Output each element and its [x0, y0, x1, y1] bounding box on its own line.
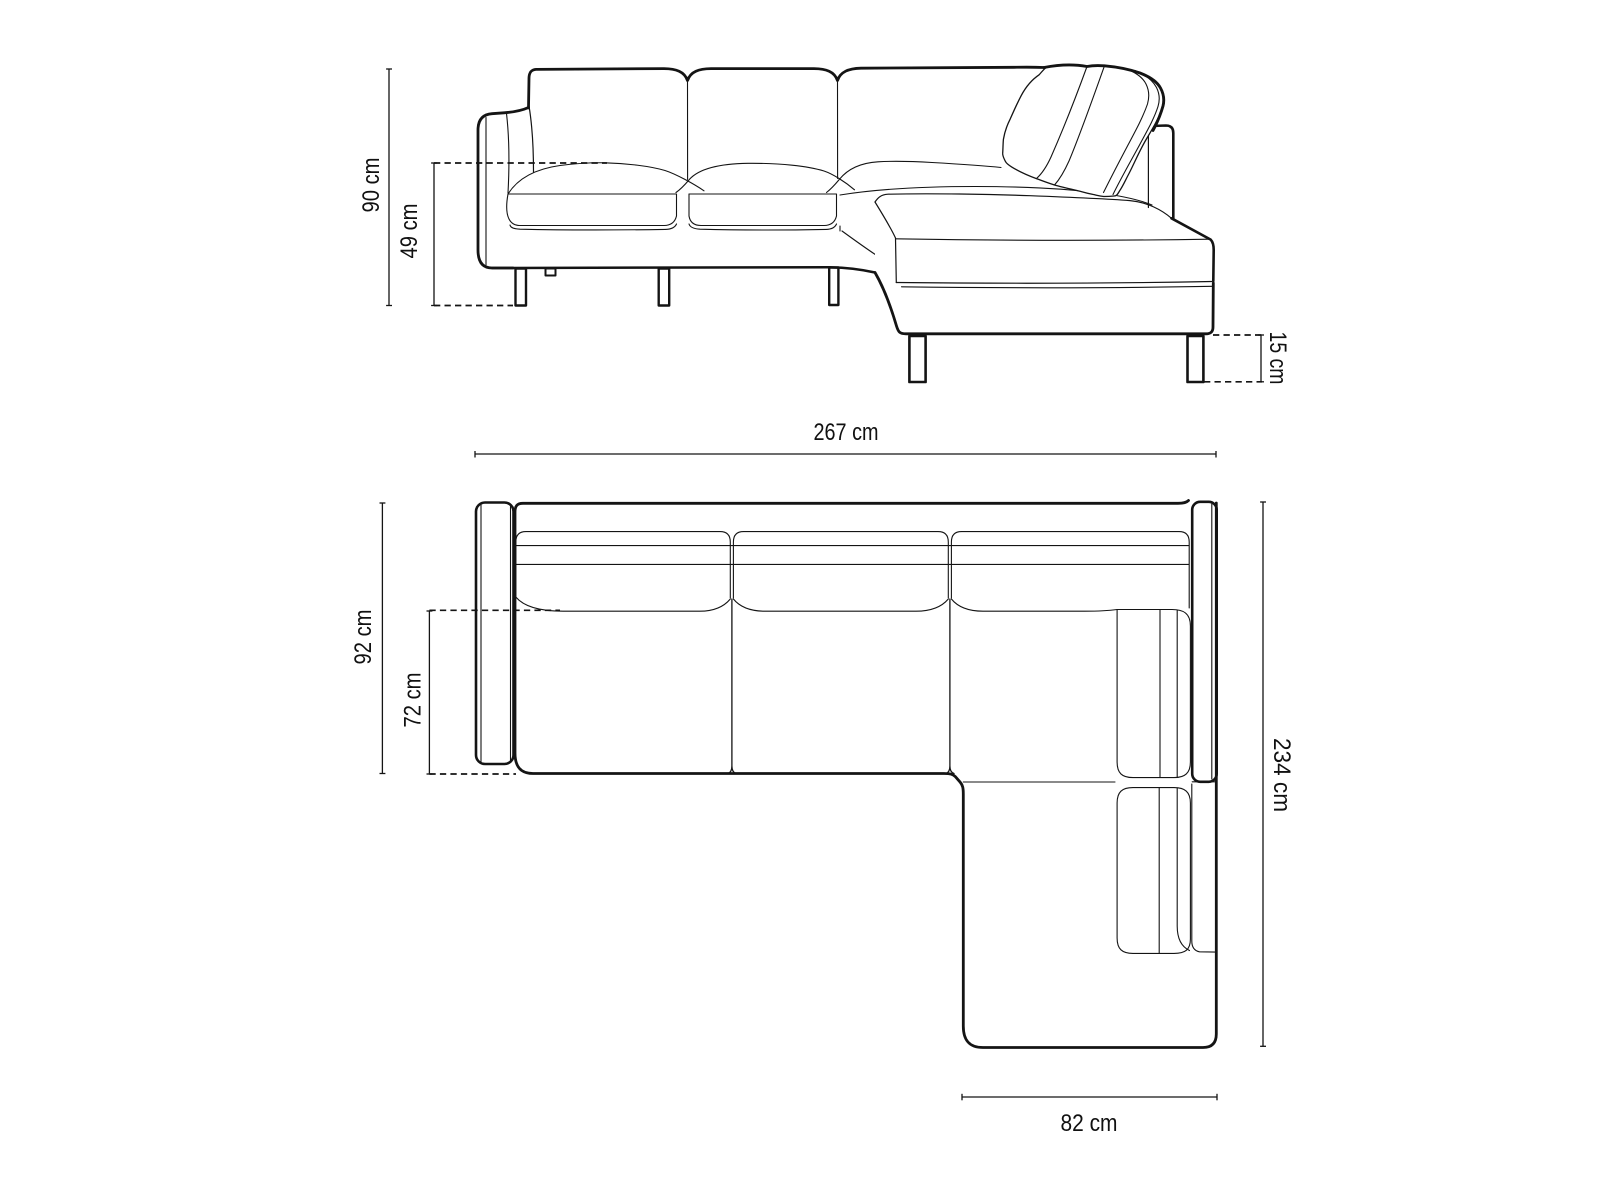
svg-text:49 cm: 49 cm	[396, 204, 423, 259]
svg-text:267 cm: 267 cm	[814, 419, 879, 446]
svg-text:15 cm: 15 cm	[1264, 332, 1291, 385]
svg-text:92 cm: 92 cm	[350, 610, 377, 665]
svg-text:90 cm: 90 cm	[358, 158, 385, 213]
svg-text:72 cm: 72 cm	[400, 673, 427, 728]
svg-text:82 cm: 82 cm	[1061, 1110, 1118, 1137]
svg-text:234 cm: 234 cm	[1268, 738, 1295, 812]
